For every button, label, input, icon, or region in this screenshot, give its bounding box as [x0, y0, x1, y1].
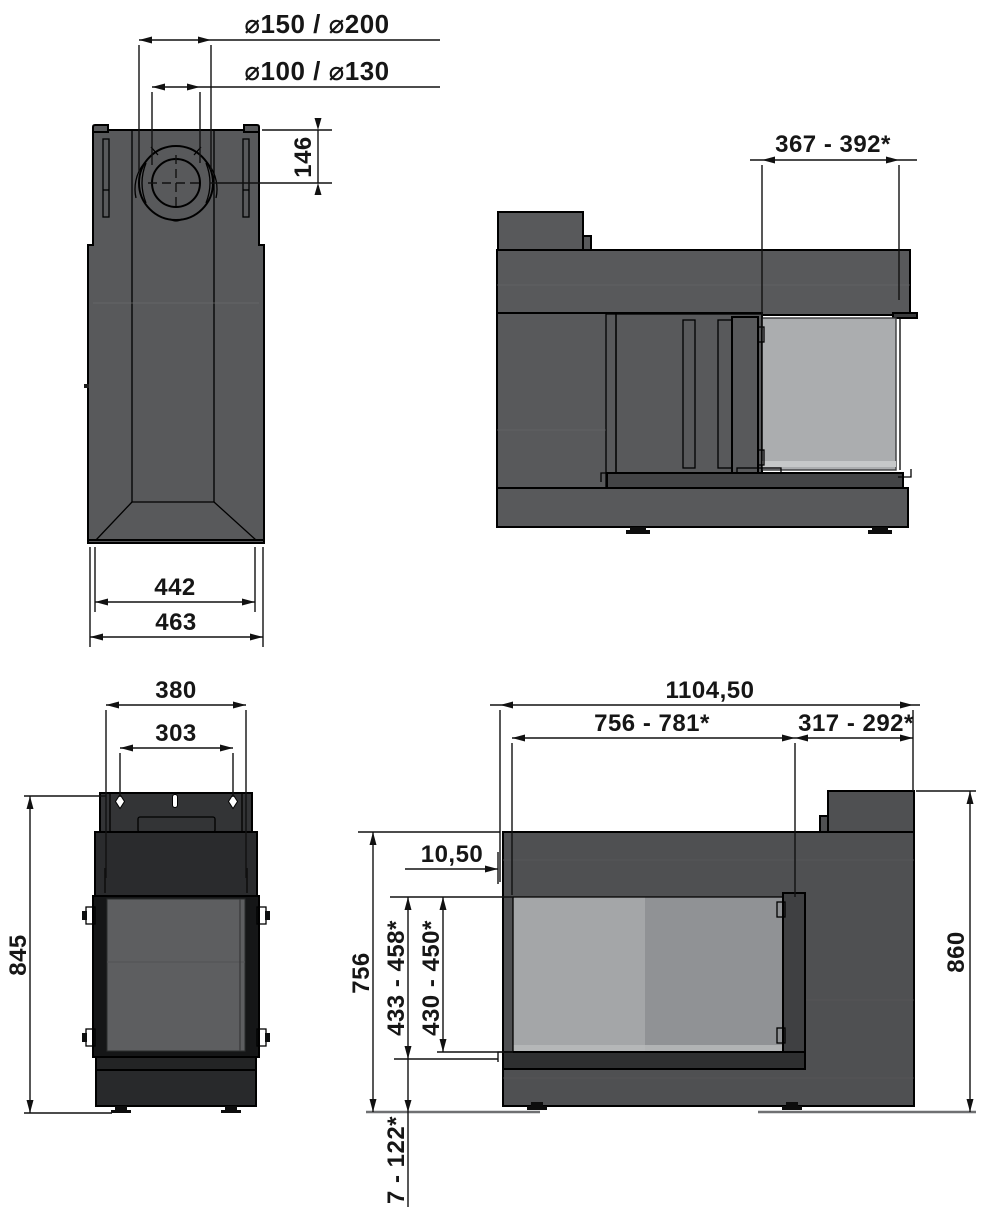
- dim-glass-height-inner-label: 430 - 450*: [418, 920, 445, 1036]
- front-narrow-rail: [96, 1057, 256, 1070]
- view-front-wide: 1104,50 756 - 781* 317 - 292* 10,50: [348, 677, 976, 1207]
- dim-top-width-inner: 442: [95, 547, 255, 612]
- dim-glass-opening-width-label: 756 - 781*: [594, 710, 710, 737]
- dim-side-glass-depth-label: 367 - 392*: [775, 131, 891, 158]
- technical-drawing: ⌀150 / ⌀200 ⌀100 / ⌀130 146 442: [0, 0, 1000, 1207]
- front-narrow-band: [95, 832, 257, 896]
- side-feet: [626, 527, 892, 534]
- dim-right-section-width: 317 - 292*: [795, 710, 914, 742]
- side-body: [497, 313, 762, 490]
- side-flue-block: [498, 212, 583, 252]
- dim-glass-lip-offset-label: 10,50: [421, 841, 484, 868]
- top-view-flange-right: [244, 125, 259, 132]
- dim-right-section-width-label: 317 - 292*: [798, 710, 914, 737]
- top-view-flange-left: [93, 125, 108, 132]
- dim-glass-height-inner: 430 - 450*: [418, 897, 513, 1052]
- dim-glass-lip-offset: 10,50: [405, 841, 498, 884]
- dim-floor-clearance-label: 7 - 122*: [383, 1116, 410, 1204]
- dim-flue-inner-label: ⌀100 / ⌀130: [244, 56, 389, 86]
- side-base: [497, 488, 908, 527]
- front-narrow-feet: [111, 1106, 241, 1113]
- dim-floor-clearance: 7 - 122*: [383, 1059, 412, 1207]
- front-narrow-glass: [107, 899, 245, 1051]
- view-side: 367 - 392*: [497, 131, 917, 534]
- dim-total-width-label: 1104,50: [666, 677, 755, 704]
- dim-top-width-inner-label: 442: [154, 574, 196, 601]
- plate-slot-center: [173, 795, 178, 808]
- dim-flue-center-depth-label: 146: [290, 136, 317, 178]
- side-bottom-rail: [607, 473, 903, 488]
- side-glass: [762, 318, 896, 470]
- dim-glass-height-outer: 433 - 458*: [383, 897, 513, 1059]
- dim-glass-height-outer-label: 433 - 458*: [383, 920, 410, 1036]
- view-top: ⌀150 / ⌀200 ⌀100 / ⌀130 146 442: [84, 9, 440, 647]
- dim-plate-hole-spacing: 303: [120, 720, 233, 797]
- front-narrow-plinth: [96, 1070, 256, 1106]
- dim-flue-outer-label: ⌀150 / ⌀200: [244, 9, 389, 39]
- dim-overall-height-label: 860: [943, 931, 970, 973]
- dim-front-plate-width-label: 380: [155, 677, 197, 704]
- dim-overall-height: 860: [916, 791, 976, 1112]
- front-wide-door-frame: [783, 893, 805, 1059]
- front-wide-flue-block: [828, 791, 914, 832]
- front-wide-glass-right: [645, 897, 783, 1052]
- side-top-band: [497, 250, 910, 315]
- dim-front-body-height-label: 756: [348, 952, 375, 994]
- front-wide-glass-left: [513, 897, 645, 1052]
- front-wide-rail: [503, 1052, 805, 1069]
- dim-top-width-outer-label: 463: [155, 609, 197, 636]
- dim-side-body-height-label: 845: [5, 934, 32, 976]
- dim-plate-hole-spacing-label: 303: [155, 720, 197, 747]
- view-front-narrow: 380 303 845: [5, 677, 270, 1113]
